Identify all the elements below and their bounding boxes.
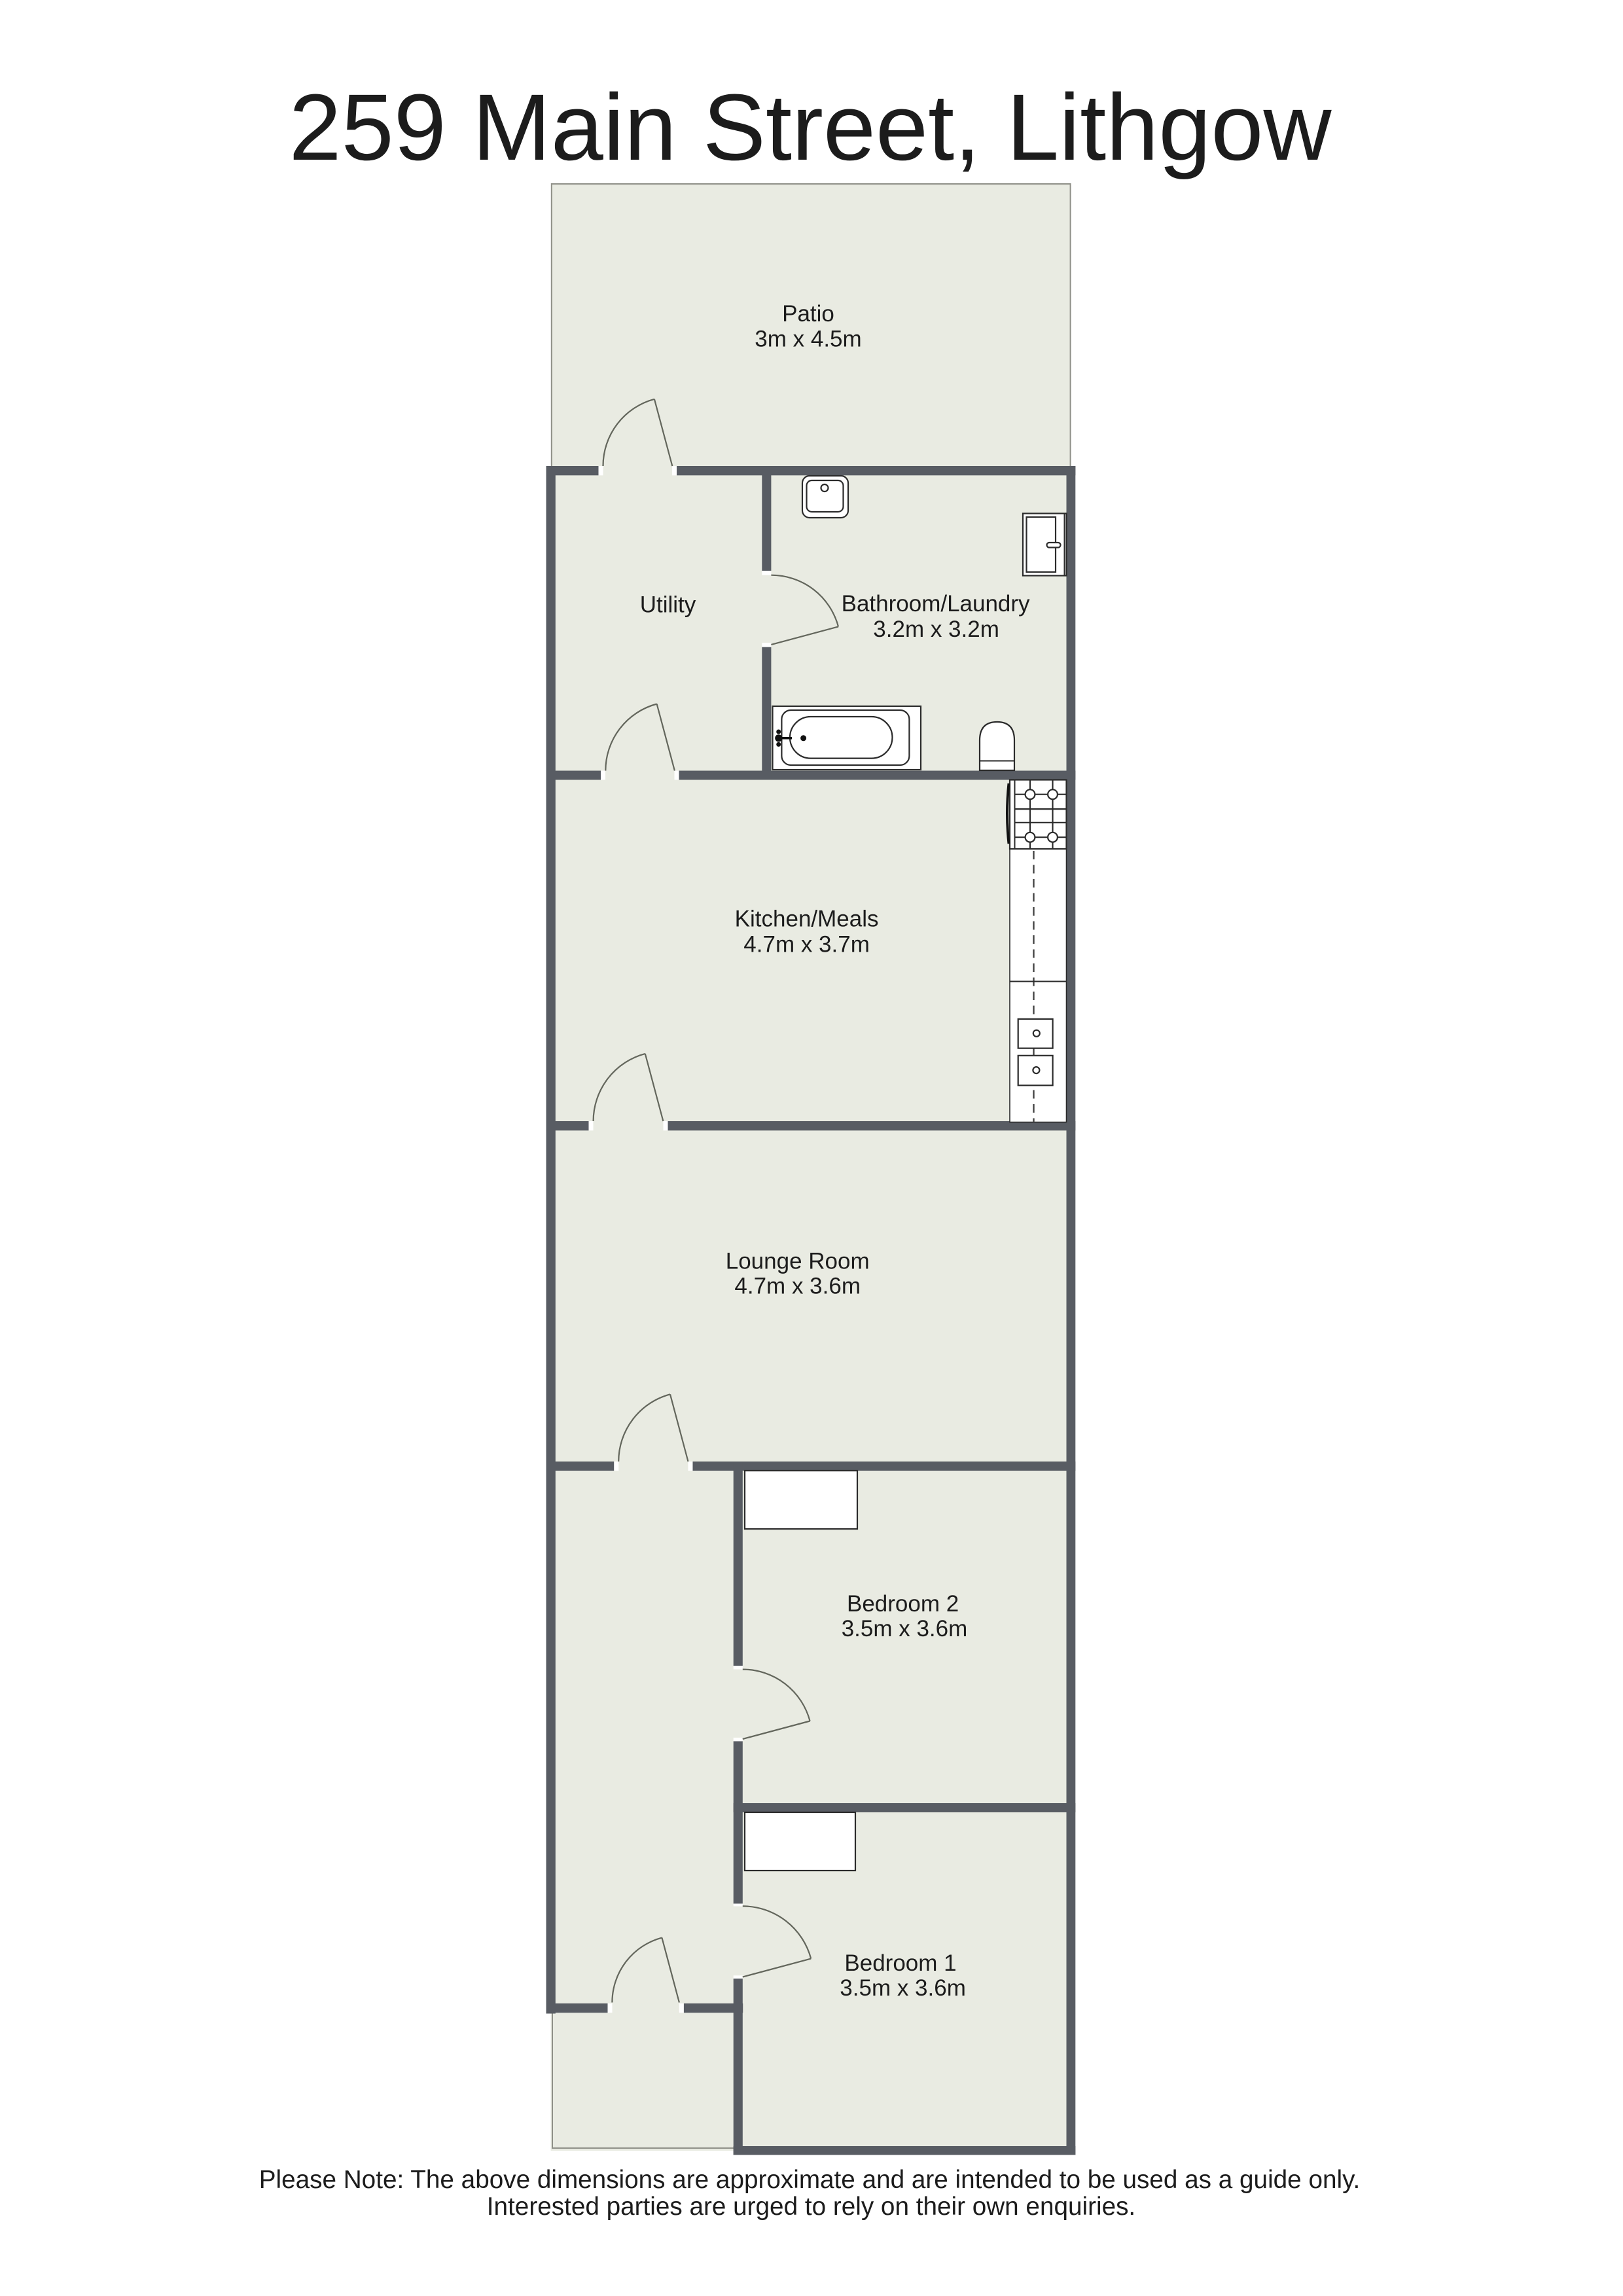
svg-text:4.7m x 3.7m: 4.7m x 3.7m [743,932,870,958]
svg-text:Bedroom 1: Bedroom 1 [844,1950,956,1976]
svg-text:Lounge Room: Lounge Room [726,1249,870,1274]
svg-text:Bedroom 2: Bedroom 2 [847,1591,959,1617]
svg-text:Bathroom/Laundry: Bathroom/Laundry [842,591,1030,617]
svg-text:3.2m x 3.2m: 3.2m x 3.2m [873,617,999,642]
svg-text:Interested parties are urged t: Interested parties are urged to rely on … [487,2193,1135,2221]
svg-text:Patio: Patio [782,301,834,327]
svg-text:Please Note: The above dimensi: Please Note: The above dimensions are ap… [259,2166,1361,2194]
svg-text:4.7m x 3.6m: 4.7m x 3.6m [734,1274,861,1299]
svg-text:259 Main Street, Lithgow: 259 Main Street, Lithgow [289,75,1332,180]
svg-text:Utility: Utility [640,592,696,618]
svg-text:3m x 4.5m: 3m x 4.5m [755,327,861,352]
svg-text:Kitchen/Meals: Kitchen/Meals [735,906,879,932]
svg-text:3.5m x 3.6m: 3.5m x 3.6m [840,1975,966,2001]
svg-text:3.5m x 3.6m: 3.5m x 3.6m [842,1616,968,1641]
